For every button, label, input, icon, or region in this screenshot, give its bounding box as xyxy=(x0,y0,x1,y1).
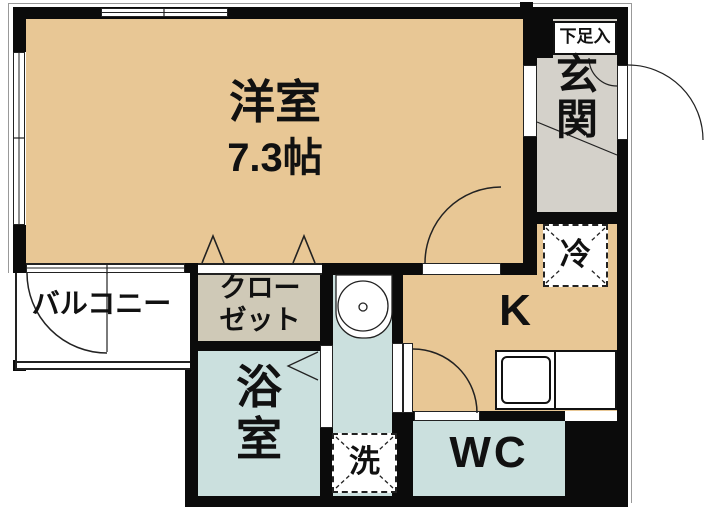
wc-door-gap xyxy=(414,411,480,421)
wall-top-nub xyxy=(520,2,533,8)
genkan-line1: 玄 xyxy=(537,52,617,97)
corridor-kitchen-door-gap xyxy=(392,343,403,413)
room-genkan-label: 玄 関 xyxy=(537,52,617,143)
laundry-label: 洗 xyxy=(332,433,397,493)
floorplan: 洋室 7.3帖 玄 関 下足入 冷 K バルコニー クロー ゼット 浴 室 洗 … xyxy=(0,0,706,507)
closet-line1: クロー xyxy=(198,273,322,305)
wall-pipe-space xyxy=(565,421,617,496)
room-living-size: 7.3帖 xyxy=(175,135,375,181)
outline-top xyxy=(8,3,632,4)
kitchen-sink xyxy=(501,356,551,404)
wc-label: WC xyxy=(413,428,565,479)
balcony-rail xyxy=(17,361,190,370)
wall-closet-bath-divider xyxy=(198,341,320,351)
entrance-door-arc xyxy=(628,65,703,140)
refrigerator-label: 冷 xyxy=(543,224,608,287)
wc-door-leaf xyxy=(403,343,413,413)
bath-line2: 室 xyxy=(198,414,320,466)
wall-genkan-bottom xyxy=(523,212,628,224)
room-living-name: 洋室 xyxy=(175,76,375,129)
room-closet-label: クロー ゼット xyxy=(198,273,322,337)
window-top xyxy=(101,8,228,17)
wall-left-lower xyxy=(13,225,26,273)
bath-line1: 浴 xyxy=(198,362,320,414)
wall-bottom xyxy=(185,496,628,507)
wall-genkan-left-lower xyxy=(523,137,537,275)
entrance-door-gap xyxy=(617,65,628,140)
kitchen-label: K xyxy=(481,286,549,337)
genkan-line2: 関 xyxy=(537,97,617,142)
wall-right-lower xyxy=(617,140,628,507)
kitchen-counter-divider xyxy=(554,352,556,408)
outline-left xyxy=(8,3,9,273)
closet-line2: ゼット xyxy=(198,305,322,337)
shoe-cabinet-label: 下足入 xyxy=(553,21,617,55)
wall-right-upper xyxy=(617,7,628,65)
outline-right xyxy=(631,3,632,503)
wall-living-bottom-a xyxy=(322,263,422,275)
room-living-label: 洋室 7.3帖 xyxy=(175,76,375,181)
room-bath-label: 浴 室 xyxy=(198,362,320,465)
balcony-label: バルコニー xyxy=(15,288,188,320)
wall-left-upper xyxy=(13,19,26,52)
wall-wc-left xyxy=(403,421,413,496)
kitchen-counter xyxy=(495,350,617,410)
living-kitchen-door-gap xyxy=(422,263,501,275)
window-left xyxy=(13,52,25,225)
living-genkan-door-gap xyxy=(523,65,537,137)
bath-folding-door-gap xyxy=(320,345,333,428)
